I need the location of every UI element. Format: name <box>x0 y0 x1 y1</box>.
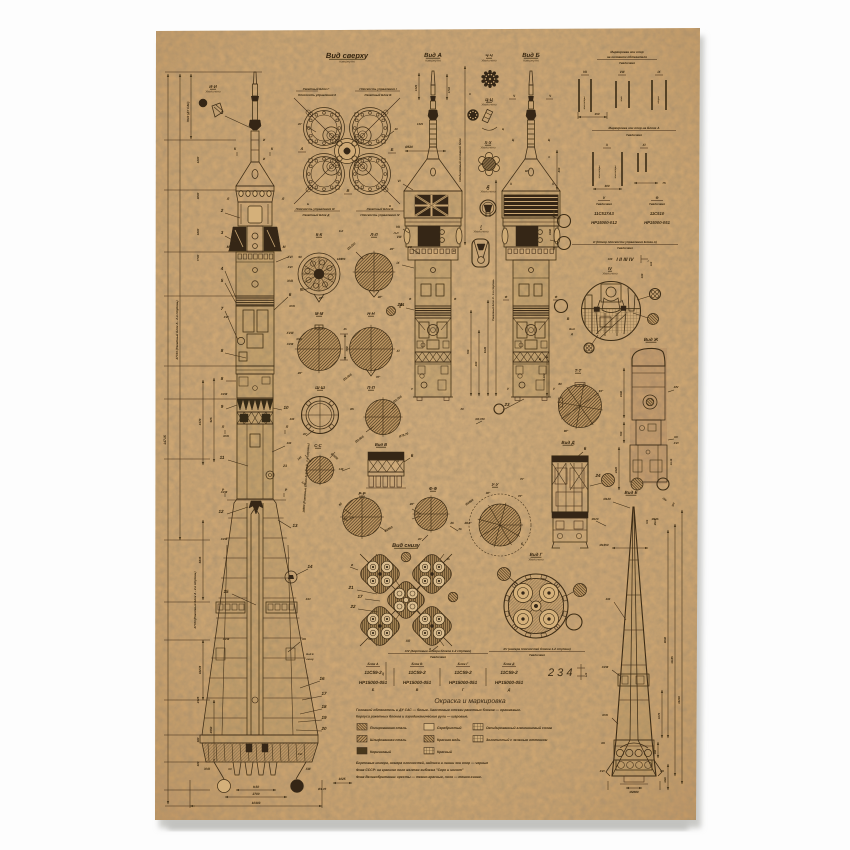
svg-text:45°: 45° <box>297 122 303 126</box>
svg-text:зона опоры: зона опоры <box>583 96 586 109</box>
svg-text:Увеличено: Увеличено <box>473 230 489 234</box>
svg-text:Вид: Вид <box>569 327 575 331</box>
svg-text:2420: 2420 <box>614 466 618 474</box>
svg-text:Серебристый: Серебристый <box>437 726 462 730</box>
svg-text:А: А <box>300 146 304 151</box>
svg-text:К-К: К-К <box>316 232 323 237</box>
svg-text:2325: 2325 <box>196 696 200 704</box>
svg-text:100: 100 <box>650 261 653 266</box>
svg-text:1075: 1075 <box>657 712 661 719</box>
svg-text:Головной обтекатель и ДУ САС —: Головной обтекатель и ДУ САС — белые. Хв… <box>356 708 521 712</box>
svg-text:Отделяемый головной блок: Отделяемый головной блок <box>458 138 462 182</box>
svg-text:16: 16 <box>319 676 325 681</box>
svg-text:700: 700 <box>466 349 470 354</box>
svg-text:Ц: Ц <box>502 127 504 131</box>
svg-text:26: 26 <box>457 527 462 531</box>
svg-text:20: 20 <box>320 726 327 731</box>
svg-text:11С59-2: 11С59-2 <box>500 670 518 675</box>
svg-text:11С59-2: 11С59-2 <box>408 670 426 675</box>
svg-text:1025: 1025 <box>338 777 345 781</box>
svg-text:11С59-2: 11С59-2 <box>454 670 472 675</box>
svg-text:ХП: ХП <box>405 639 411 643</box>
svg-text:XVII: XVII <box>286 279 293 283</box>
svg-text:Л-Л: Л-Л <box>369 232 377 237</box>
svg-text:12: 12 <box>218 509 224 514</box>
svg-text:45°: 45° <box>297 371 303 375</box>
svg-text:XVIII: XVIII <box>220 537 228 541</box>
svg-text:45°: 45° <box>389 247 395 251</box>
svg-text:40: 40 <box>393 127 398 131</box>
svg-text:VII: VII <box>583 70 587 74</box>
svg-text:XVIII: XVIII <box>286 342 294 346</box>
svg-text:В: В <box>416 688 419 692</box>
svg-text:XXI: XXI <box>305 597 311 601</box>
svg-text:Д: Д <box>507 688 511 692</box>
svg-text:Ø120: Ø120 <box>592 517 599 521</box>
svg-text:Красная медь: Красная медь <box>437 738 460 742</box>
svg-text:зона опоры: зона опоры <box>614 165 617 178</box>
svg-text:XI: XI <box>452 249 456 253</box>
svg-text:Увеличено: Увеличено <box>596 202 612 206</box>
svg-text:Ш-Ш: Ш-Ш <box>315 385 325 390</box>
svg-text:10303: 10303 <box>252 801 261 805</box>
svg-text:XVII: XVII <box>222 434 229 438</box>
svg-text:XII: XII <box>600 741 605 745</box>
svg-text:10278: 10278 <box>198 665 202 674</box>
svg-text:27723 (Ракетный Блок А - 2-я с: 27723 (Ракетный Блок А - 2-я ступень) <box>193 572 197 630</box>
svg-text:6: 6 <box>521 542 523 546</box>
svg-text:Увеличено: Увеличено <box>430 655 446 659</box>
svg-text:1570: 1570 <box>198 418 202 425</box>
svg-text:Б: Б <box>307 202 309 206</box>
svg-text:Коричневый: Коричневый <box>370 750 392 754</box>
svg-text:Ч-Ч: Ч-Ч <box>485 53 493 58</box>
svg-text:Увеличено: Увеличено <box>481 59 497 63</box>
svg-text:11: 11 <box>220 455 225 460</box>
svg-text:на головном обтекателе: на головном обтекателе <box>607 55 647 59</box>
svg-text:Вид В: Вид В <box>375 442 387 447</box>
svg-text:Ф-Ф: Ф-Ф <box>429 486 438 491</box>
svg-text:24: 24 <box>399 302 405 307</box>
svg-text:НР15000-051: НР15000-051 <box>495 680 524 685</box>
svg-text:Ø2.700: Ø2.700 <box>475 417 485 421</box>
svg-text:зона опоры: зона опоры <box>598 165 601 178</box>
svg-text:Бортовые номера, номера плоско: Бортовые номера, номера плоскостей, надп… <box>356 761 488 765</box>
svg-text:17: 17 <box>321 691 327 696</box>
svg-text:XIV (Бортовые номера блоков 1-: XIV (Бортовые номера блоков 1-2 ступени) <box>404 649 471 653</box>
svg-text:Окраска и маркировка: Окраска и маркировка <box>434 698 506 705</box>
svg-text:Вид Е: Вид Е <box>306 653 314 656</box>
svg-text:VIII: VIII <box>408 245 412 249</box>
svg-text:1710: 1710 <box>447 86 451 93</box>
svg-text:Плоскость управления I: Плоскость управления I <box>359 87 396 91</box>
svg-text:П-П: П-П <box>367 385 375 390</box>
svg-text:Ø120: Ø120 <box>603 497 611 501</box>
svg-text:VI: VI <box>397 179 400 183</box>
svg-text:21: 21 <box>347 585 354 590</box>
svg-text:10: 10 <box>283 405 289 410</box>
svg-text:19: 19 <box>321 715 327 720</box>
svg-text:Увеличено: Увеличено <box>529 653 545 657</box>
svg-text:7700: 7700 <box>196 254 200 261</box>
svg-text:XIII: XIII <box>305 767 311 771</box>
svg-text:Вид Ж: Вид Ж <box>644 337 659 342</box>
svg-text:Увеличено: Увеличено <box>602 272 618 276</box>
svg-text:150: 150 <box>594 112 599 116</box>
svg-text:Л-Л: Л-Л <box>393 231 399 235</box>
svg-text:В: В <box>389 204 391 208</box>
svg-text:В: В <box>567 317 570 321</box>
svg-text:800: 800 <box>557 167 561 172</box>
svg-text:80: 80 <box>343 517 347 521</box>
svg-text:НР15000-051: НР15000-051 <box>359 680 388 685</box>
svg-text:90: 90 <box>298 255 302 259</box>
svg-text:Б: Б <box>372 688 375 692</box>
svg-text:8000: 8000 <box>663 636 667 643</box>
svg-text:Увеличено: Увеличено <box>480 146 496 150</box>
svg-text:300: 300 <box>604 184 609 188</box>
svg-text:Ракетный Блок Д: Ракетный Блок Д <box>303 213 331 217</box>
svg-text:Флаг Великобритании: кресты —: Флаг Великобритании: кресты — темно-крас… <box>356 775 482 779</box>
svg-text:1325: 1325 <box>417 122 424 126</box>
svg-text:XII: XII <box>367 637 372 641</box>
svg-text:НР15000-051: НР15000-051 <box>403 680 432 685</box>
svg-text:Ракетный Блок Г: Ракетный Блок Г <box>303 87 330 91</box>
svg-text:70°: 70° <box>376 375 381 379</box>
svg-text:XIX: XIX <box>289 417 296 421</box>
svg-text:Ø1350: Ø1350 <box>599 543 608 547</box>
svg-text:180: 180 <box>196 737 200 742</box>
svg-text:Х-Х: Х-Х <box>484 140 492 145</box>
svg-text:НР15000-051: НР15000-051 <box>449 680 478 685</box>
svg-text:А: А <box>396 459 399 463</box>
svg-text:90°: 90° <box>564 429 569 433</box>
svg-text:Ø2680: Ø2680 <box>629 790 638 794</box>
svg-text:Оксидированный алюминиевый спл: Оксидированный алюминиевый сплав <box>486 726 552 730</box>
svg-text:Увеличено: Увеличено <box>205 90 221 94</box>
svg-text:снизу: снизу <box>306 658 314 661</box>
svg-text:360: 360 <box>654 749 657 754</box>
svg-text:повернуто: повернуто <box>339 60 355 64</box>
svg-text:XVIII: XVIII <box>220 490 228 494</box>
svg-text:2 3 4: 2 3 4 <box>547 667 572 679</box>
svg-text:17: 17 <box>357 594 363 599</box>
svg-text:28.5°: 28.5° <box>463 521 472 525</box>
svg-text:Увеличено: Увеличено <box>626 133 642 137</box>
svg-text:Плоскость управления II: Плоскость управления II <box>298 93 336 97</box>
svg-text:5835: 5835 <box>198 556 202 563</box>
svg-text:XV (номера плоскостей блоков 1: XV (номера плоскостей блоков 1-2 ступени… <box>502 647 571 651</box>
svg-text:XVII: XVII <box>601 713 608 717</box>
svg-text:23: 23 <box>282 464 287 468</box>
svg-text:В: В <box>347 188 350 193</box>
svg-text:Вид Е: Вид Е <box>624 490 638 495</box>
svg-text:Т-Т: Т-Т <box>575 368 582 373</box>
svg-text:700: 700 <box>619 431 623 436</box>
svg-text:1325: 1325 <box>414 84 418 91</box>
svg-text:Корпуса ракетных блоков и аэро: Корпуса ракетных блоков и аэродинамическ… <box>356 715 468 719</box>
svg-text:Вид Д: Вид Д <box>561 440 575 445</box>
svg-text:11С510: 11С510 <box>650 211 665 216</box>
svg-text:повернуто: повернуто <box>523 59 539 63</box>
svg-text:23: 23 <box>503 402 510 407</box>
svg-text:У-У: У-У <box>491 482 499 487</box>
svg-text:120: 120 <box>585 672 588 677</box>
svg-text:1200: 1200 <box>196 156 200 163</box>
svg-text:2: 2 <box>220 208 224 213</box>
svg-text:XII: XII <box>301 637 306 641</box>
svg-text:Увеличено: Увеличено <box>528 558 544 562</box>
svg-text:XVII: XVII <box>288 304 295 308</box>
svg-text:4: 4 <box>220 266 224 271</box>
svg-text:Плоскость управления III: Плоскость управления III <box>296 207 335 211</box>
svg-text:10.35: 10.35 <box>670 458 673 465</box>
svg-text:Ø135: Ø135 <box>652 517 659 521</box>
svg-text:XVI: XVI <box>297 752 303 756</box>
svg-text:Красный: Красный <box>437 750 453 754</box>
svg-text:14: 14 <box>307 564 313 569</box>
svg-text:100: 100 <box>640 273 644 278</box>
svg-text:400: 400 <box>474 361 478 367</box>
svg-text:26: 26 <box>449 521 454 525</box>
svg-text:XIX: XIX <box>605 597 612 601</box>
svg-text:I II III IV: I II III IV <box>616 257 634 263</box>
svg-text:45: 45 <box>445 557 450 561</box>
svg-text:XVII: XVII <box>203 767 210 771</box>
svg-text:6145: 6145 <box>483 346 487 353</box>
svg-text:Д: Д <box>570 332 573 336</box>
svg-text:20: 20 <box>382 672 385 676</box>
svg-text:зона: зона <box>620 96 623 102</box>
svg-text:XIX: XIX <box>286 441 293 445</box>
svg-text:Н-Н: Н-Н <box>367 311 375 316</box>
svg-text:18: 18 <box>321 704 327 709</box>
svg-text:повернуто: повернуто <box>425 59 441 63</box>
svg-text:С-С: С-С <box>314 443 322 448</box>
svg-text:15°: 15° <box>599 389 604 393</box>
svg-text:Θ: Θ <box>656 196 659 200</box>
svg-text:Вид Г: Вид Г <box>530 552 543 557</box>
svg-text:опоры: опоры <box>657 96 660 103</box>
svg-text:20: 20 <box>459 407 464 411</box>
svg-text:1500: 1500 <box>619 390 623 397</box>
svg-text:75°: 75° <box>518 494 523 498</box>
svg-text:Ø10: Ø10 <box>296 337 302 341</box>
svg-text:К: К <box>469 92 471 96</box>
svg-text:XVIII: XVIII <box>601 665 609 669</box>
svg-text:Увеличено: Увеличено <box>649 202 665 206</box>
svg-text:XVIII: XVIII <box>286 331 294 335</box>
svg-text:Ø520: Ø520 <box>405 145 413 149</box>
svg-text:45°: 45° <box>318 296 324 300</box>
svg-text:XVI: XVI <box>223 315 229 319</box>
svg-text:45°: 45° <box>409 502 415 506</box>
svg-text:24: 24 <box>594 473 601 478</box>
svg-text:Б: Б <box>391 147 394 152</box>
svg-text:120: 120 <box>341 257 346 261</box>
svg-text:М: М <box>283 245 286 249</box>
svg-text:11С517А3: 11С517А3 <box>594 211 614 216</box>
svg-text:22: 22 <box>349 604 356 609</box>
svg-text:925: 925 <box>209 417 213 422</box>
svg-text:Увеличено: Увеличено <box>617 246 633 250</box>
svg-text:3000: 3000 <box>196 192 200 199</box>
svg-text:14715: 14715 <box>163 435 167 445</box>
svg-text:2700: 2700 <box>251 792 259 796</box>
svg-text:НР15000-051: НР15000-051 <box>644 220 671 225</box>
svg-text:VII: VII <box>396 225 400 229</box>
svg-text:Маркировка зон опор на Блоке А: Маркировка зон опор на Блоке А <box>609 126 661 130</box>
svg-text:И-И: И-И <box>209 84 217 89</box>
svg-text:720: 720 <box>646 519 649 524</box>
svg-text:Золотистый с зеленым оттенком: Золотистый с зеленым оттенком <box>486 738 548 742</box>
svg-text:Блок Г: Блок Г <box>458 662 470 666</box>
svg-text:45°: 45° <box>417 537 423 541</box>
svg-text:80: 80 <box>558 382 562 386</box>
svg-text:Увеличено: Увеличено <box>480 190 496 194</box>
svg-text:XVI: XVI <box>287 265 293 269</box>
svg-text:Плоскость управления IV: Плоскость управления IV <box>360 213 400 217</box>
svg-text:11185: 11185 <box>670 656 674 664</box>
svg-text:Полированная сталь: Полированная сталь <box>370 726 407 730</box>
svg-text:13: 13 <box>292 523 298 528</box>
svg-text:XII: XII <box>659 769 664 773</box>
svg-text:XIV: XIV <box>673 385 680 389</box>
svg-text:XVI: XVI <box>673 441 679 445</box>
svg-text:Блок А: Блок А <box>368 662 380 666</box>
svg-text:30°: 30° <box>486 491 491 495</box>
svg-text:XVI: XVI <box>599 769 605 773</box>
svg-text:К-К: К-К <box>339 229 344 233</box>
svg-text:9.50: 9.50 <box>253 785 259 789</box>
svg-text:XI: XI <box>395 349 399 353</box>
svg-text:М-М: М-М <box>315 311 324 316</box>
svg-text:XVIII: XVIII <box>220 392 228 396</box>
svg-text:75: 75 <box>662 181 666 185</box>
svg-text:НР15000-012: НР15000-012 <box>591 220 618 225</box>
svg-text:Блок В: Блок В <box>412 662 424 666</box>
svg-text:XI: XI <box>641 143 645 147</box>
svg-text:40°: 40° <box>377 295 383 299</box>
svg-text:1080: 1080 <box>664 777 667 783</box>
svg-text:Ø1.70: Ø1.70 <box>318 787 327 791</box>
svg-text:11С59-2: 11С59-2 <box>364 670 382 675</box>
svg-text:Ц-Ц: Ц-Ц <box>485 97 493 102</box>
svg-text:М: М <box>227 245 230 249</box>
svg-text:И (Номер плоскости управления: И (Номер плоскости управления Блока А) <box>593 240 657 244</box>
svg-text:27723 (Ракетный Блок А - 2-я с: 27723 (Ракетный Блок А - 2-я ступень) <box>175 300 179 360</box>
svg-text:Шлифованная сталь: Шлифованная сталь <box>370 738 406 742</box>
svg-text:Маркировка зон опор: Маркировка зон опор <box>610 50 643 54</box>
svg-text:100: 100 <box>608 257 613 261</box>
svg-text:1800: 1800 <box>196 228 200 235</box>
svg-text:Х: Х <box>547 155 550 159</box>
svg-text:Флаг СССР: на красном поле жел: Флаг СССР: на красном поле желтая эмблем… <box>356 768 464 772</box>
svg-text:45: 45 <box>342 327 347 331</box>
svg-text:19200: 19200 <box>677 696 681 704</box>
svg-text:Ракетный Блок В: Ракетный Блок В <box>365 93 393 97</box>
svg-text:Ø5: Ø5 <box>350 407 354 411</box>
svg-text:VIII: VIII <box>620 70 625 74</box>
svg-text:Д: Д <box>485 184 489 189</box>
svg-text:Блок Д: Блок Д <box>504 662 516 666</box>
svg-text:Увеличено: Увеличено <box>481 103 497 107</box>
svg-text:VIII: VIII <box>397 235 402 239</box>
svg-text:Увеличено: Увеличено <box>619 61 635 65</box>
svg-text:7043 (ДУ САС): 7043 (ДУ САС) <box>186 102 190 123</box>
svg-text:Ракетный Блок И - 3-я ступень: Ракетный Блок И - 3-я ступень <box>492 279 495 321</box>
